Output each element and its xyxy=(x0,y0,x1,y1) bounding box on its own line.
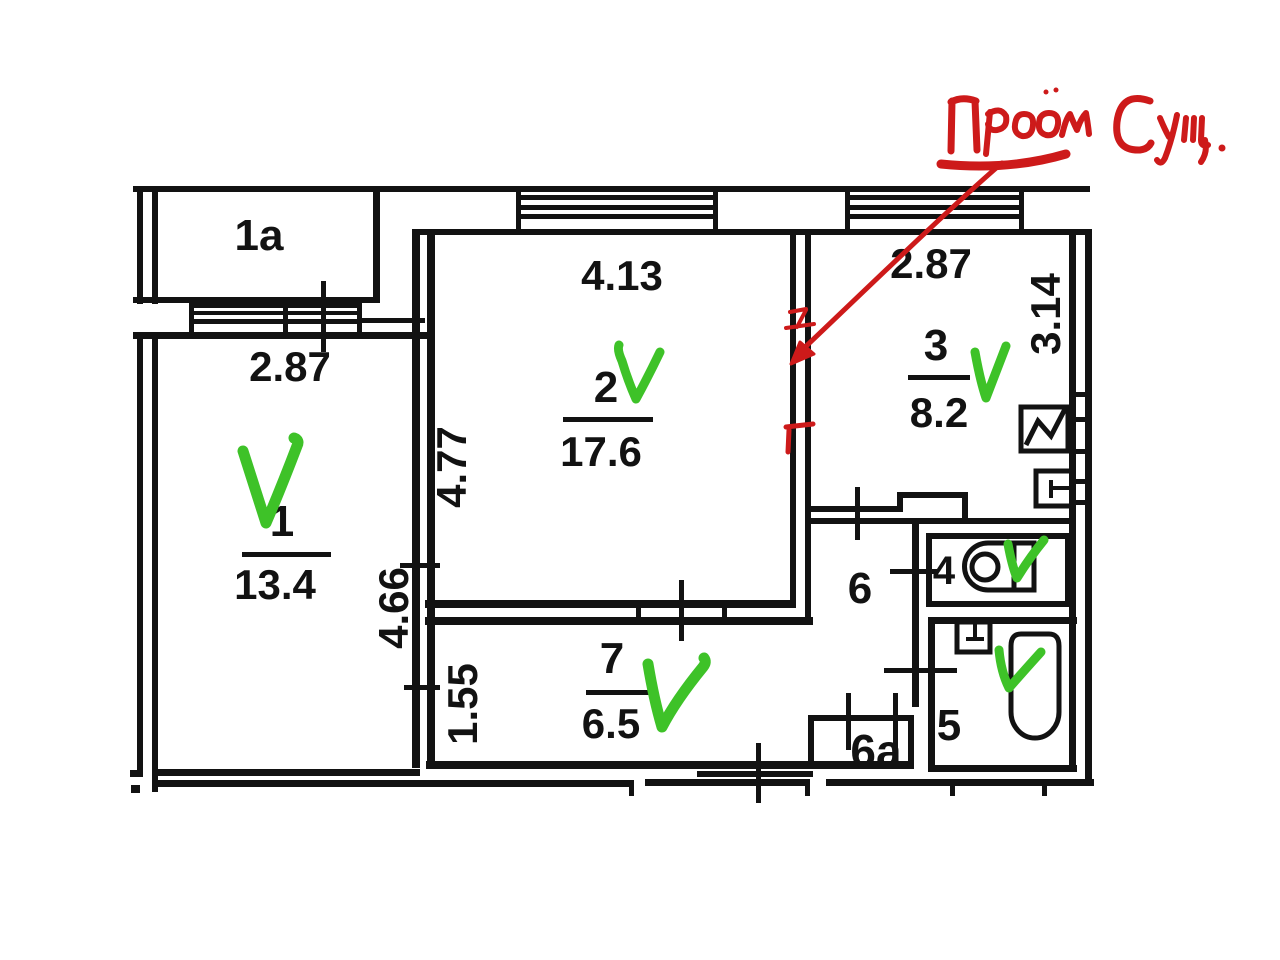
svg-text:4.66: 4.66 xyxy=(370,567,417,649)
svg-text:3.14: 3.14 xyxy=(1022,272,1069,354)
svg-text:5: 5 xyxy=(937,701,961,750)
svg-text:6: 6 xyxy=(848,564,872,613)
svg-text:6.5: 6.5 xyxy=(582,700,640,747)
svg-text:17.6: 17.6 xyxy=(560,428,642,475)
svg-text:4.77: 4.77 xyxy=(428,426,475,508)
svg-text:7: 7 xyxy=(600,634,624,683)
svg-text:6a: 6a xyxy=(850,725,902,777)
svg-text:8.2: 8.2 xyxy=(910,389,968,436)
svg-text:13.4: 13.4 xyxy=(234,561,316,608)
svg-text:3: 3 xyxy=(924,321,948,370)
svg-text:2.87: 2.87 xyxy=(890,240,972,287)
svg-text:1.55: 1.55 xyxy=(439,663,486,745)
svg-text:2: 2 xyxy=(594,363,618,412)
svg-text:2.87: 2.87 xyxy=(249,343,331,390)
svg-text:1a: 1a xyxy=(235,211,284,260)
svg-text:4: 4 xyxy=(933,549,956,593)
svg-text:4.13: 4.13 xyxy=(581,252,663,299)
